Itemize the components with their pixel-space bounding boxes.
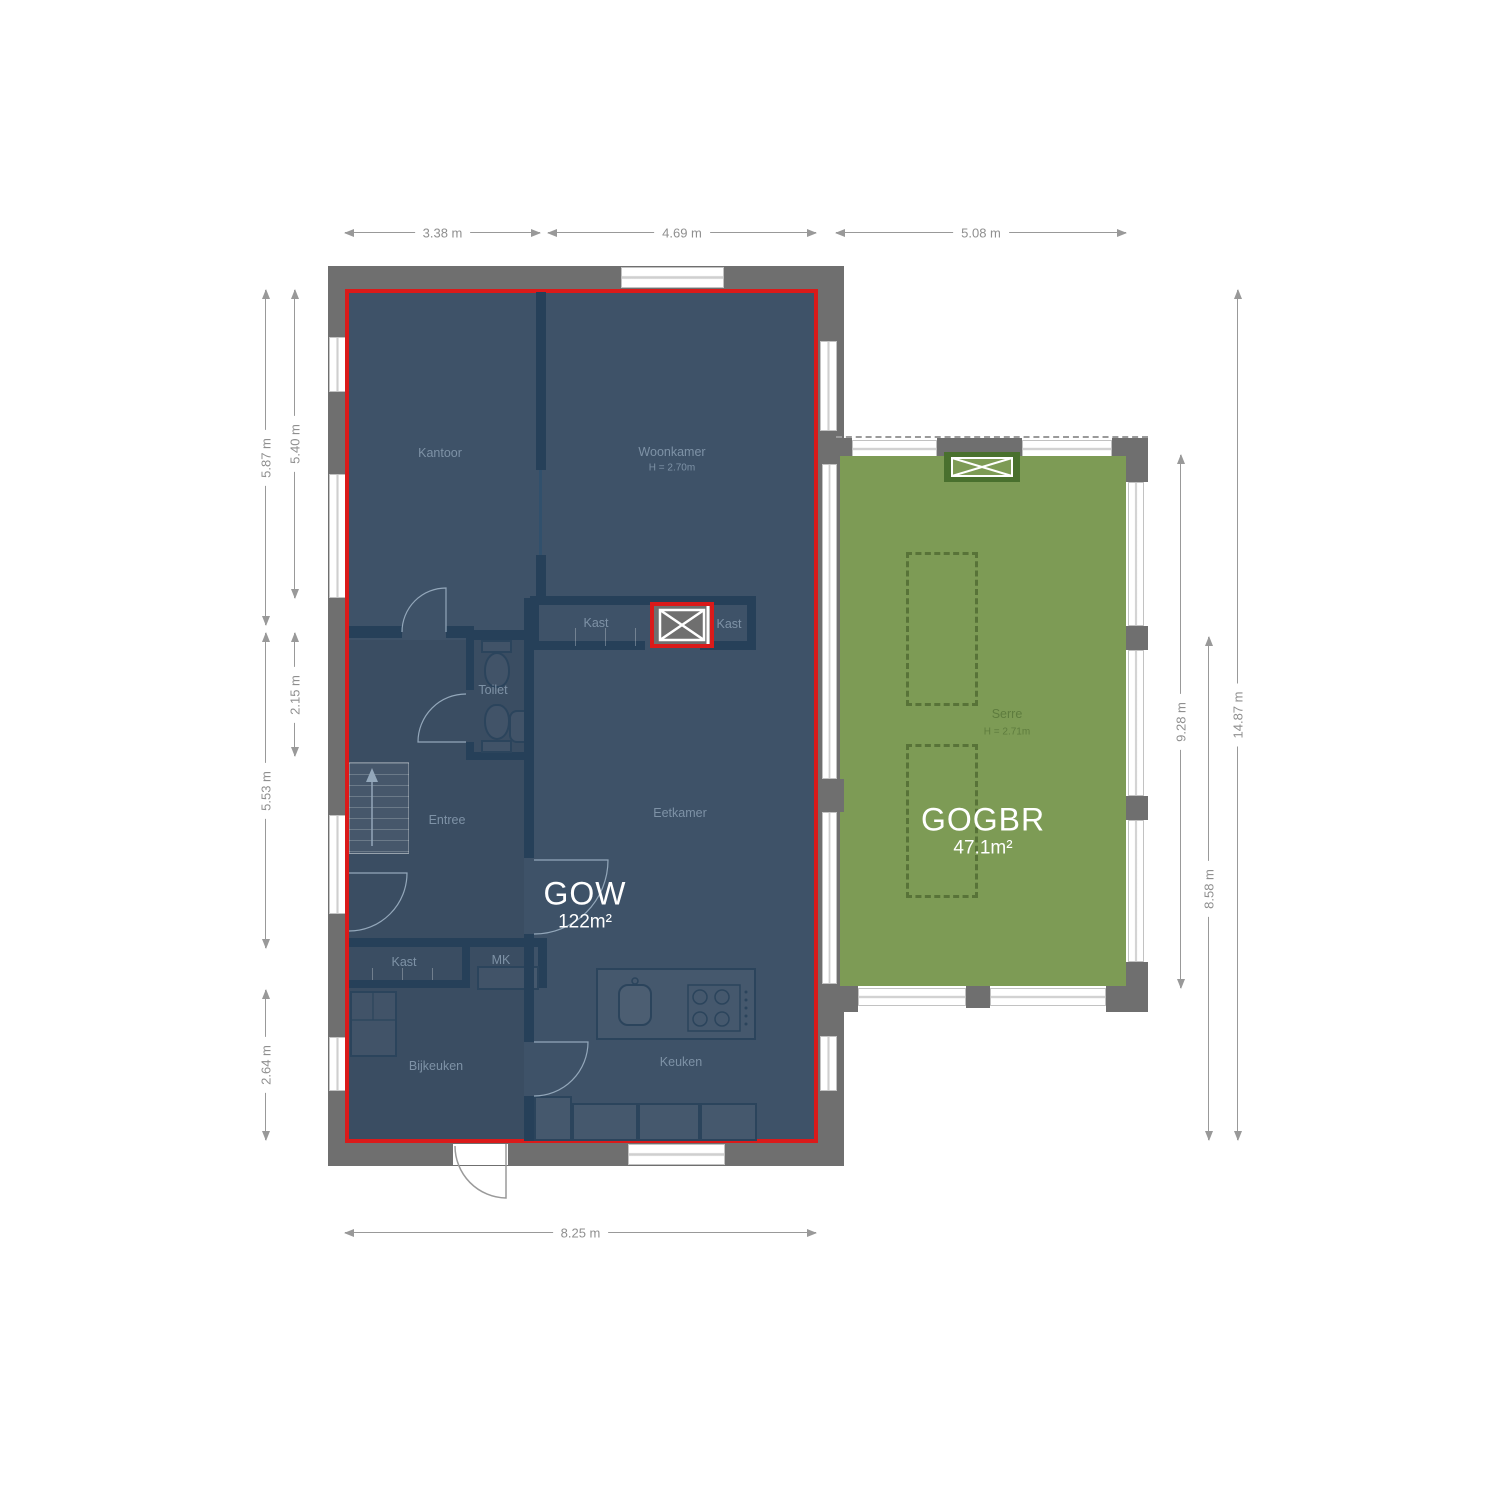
interior-wall <box>530 596 756 605</box>
window <box>1128 650 1144 796</box>
room-label-mk: MK <box>492 953 511 967</box>
dimension-bottom-1: 8.25 m <box>345 1232 816 1233</box>
room-label-keuken: Keuken <box>660 1055 702 1069</box>
room-height-serre: H = 2.71m <box>984 727 1030 738</box>
roof-opening-dashed <box>906 552 978 706</box>
zone-name-gogbr: GOGBR <box>921 802 1045 837</box>
window <box>1128 482 1144 626</box>
serre-wall <box>1106 986 1148 1012</box>
dimension-top-2: 4.69 m <box>548 232 816 233</box>
interior-wall <box>538 938 547 988</box>
interior-wall <box>466 630 532 640</box>
interior-wall <box>466 752 532 760</box>
interior-wall <box>466 630 474 690</box>
shelf-tick <box>575 628 576 646</box>
gogbr-zone <box>840 456 1126 986</box>
dimension-top-3: 5.08 m <box>836 232 1126 233</box>
zone-area-gogbr: 47.1m² <box>921 838 1045 860</box>
shelf-tick <box>635 628 636 646</box>
zone-name-gow: GOW <box>544 876 627 911</box>
counter-cabinet <box>638 1103 700 1141</box>
room-label-kantoor: Kantoor <box>418 446 462 460</box>
room-label-toilet: Toilet <box>478 683 507 697</box>
dimension-value: 9.28 m <box>1174 694 1189 750</box>
shelf-tick <box>402 968 403 980</box>
dimension-value: 5.87 m <box>259 430 274 486</box>
dimension-left-3: 2.15 m <box>294 633 295 756</box>
room-label-entree: Entree <box>429 813 466 827</box>
staircase <box>349 762 409 854</box>
interior-wall <box>349 938 546 947</box>
window <box>858 988 966 1006</box>
room-label-kast: Kast <box>583 616 608 630</box>
dimension-left-5: 2.64 m <box>265 990 266 1140</box>
serre-wall <box>966 986 990 1008</box>
dimension-left-1: 5.87 m <box>265 290 266 625</box>
serre-wall <box>1126 438 1148 482</box>
window <box>822 812 837 984</box>
dimension-value: 3.38 m <box>415 226 471 241</box>
window <box>990 988 1106 1006</box>
toilet-bowl <box>484 704 510 740</box>
serre-wall <box>1126 796 1148 820</box>
room-label-eetkamer: Eetkamer <box>653 806 707 820</box>
window <box>621 267 724 288</box>
dimension-value: 8.58 m <box>1202 861 1217 917</box>
dimension-value: 14.87 m <box>1231 684 1246 747</box>
window <box>329 474 346 598</box>
room-label-kast: Kast <box>391 955 416 969</box>
window <box>820 1036 837 1091</box>
interior-wall <box>536 292 546 470</box>
dimension-value: 2.64 m <box>259 1037 274 1093</box>
zone-label-gow: GOW 122m² <box>544 876 627 933</box>
dimension-value: 2.15 m <box>288 667 303 723</box>
utility-appliance <box>350 991 397 1057</box>
dimension-right-3: 14.87 m <box>1237 290 1238 1140</box>
window <box>822 464 837 779</box>
dimension-left-2: 5.40 m <box>294 290 295 598</box>
room-label-kast: Kast <box>716 617 741 631</box>
floor-plan: Kantoor Woonkamer H = 2.70m Kast Kast To… <box>0 0 1500 1500</box>
interior-wall <box>747 596 756 650</box>
serre-wall <box>1126 626 1148 650</box>
dimension-value: 5.53 m <box>259 763 274 819</box>
dimension-left-4: 5.53 m <box>265 633 266 948</box>
room-label-bijkeuken: Bijkeuken <box>409 1059 463 1073</box>
dimension-right-2: 8.58 m <box>1208 637 1209 1140</box>
shelf-tick <box>372 968 373 980</box>
window <box>1128 820 1144 962</box>
window <box>628 1144 725 1165</box>
shelf-tick <box>432 968 433 980</box>
zone-area-gow: 122m² <box>544 912 627 934</box>
interior-wall <box>524 958 534 1042</box>
room-label-woonkamer: Woonkamer <box>638 445 705 459</box>
void-marker <box>650 602 714 648</box>
dimension-value: 8.25 m <box>553 1226 609 1241</box>
interior-wall <box>536 555 546 598</box>
shelf-tick <box>605 628 606 646</box>
dimension-value: 5.40 m <box>288 416 303 472</box>
interior-wall <box>349 980 470 988</box>
counter-cabinet <box>572 1103 638 1141</box>
room-label-serre: Serre <box>992 707 1023 721</box>
dimension-top-1: 3.38 m <box>345 232 540 233</box>
window <box>329 1037 346 1091</box>
zone-label-gogbr: GOGBR 47.1m² <box>921 802 1045 859</box>
window <box>329 815 346 914</box>
counter-cabinet <box>700 1103 757 1141</box>
interior-wall <box>524 1096 534 1141</box>
skylight-marker <box>944 452 1020 482</box>
interior-wall <box>524 598 534 858</box>
serre-wall <box>840 986 858 1012</box>
toilet-tank <box>481 740 512 753</box>
window <box>820 341 837 431</box>
window <box>329 337 346 392</box>
sliding-door-line <box>539 470 542 555</box>
kitchen-sink <box>618 984 652 1026</box>
room-height-woonkamer: H = 2.70m <box>649 463 695 474</box>
dimension-value: 4.69 m <box>654 226 710 241</box>
counter-cabinet <box>534 1096 572 1141</box>
dimension-right-1: 9.28 m <box>1180 455 1181 988</box>
dimension-value: 5.08 m <box>953 226 1009 241</box>
interior-wall <box>349 626 402 638</box>
entry-door-opening <box>453 1144 508 1165</box>
serre-wall <box>818 779 844 812</box>
interior-wall <box>530 641 645 650</box>
